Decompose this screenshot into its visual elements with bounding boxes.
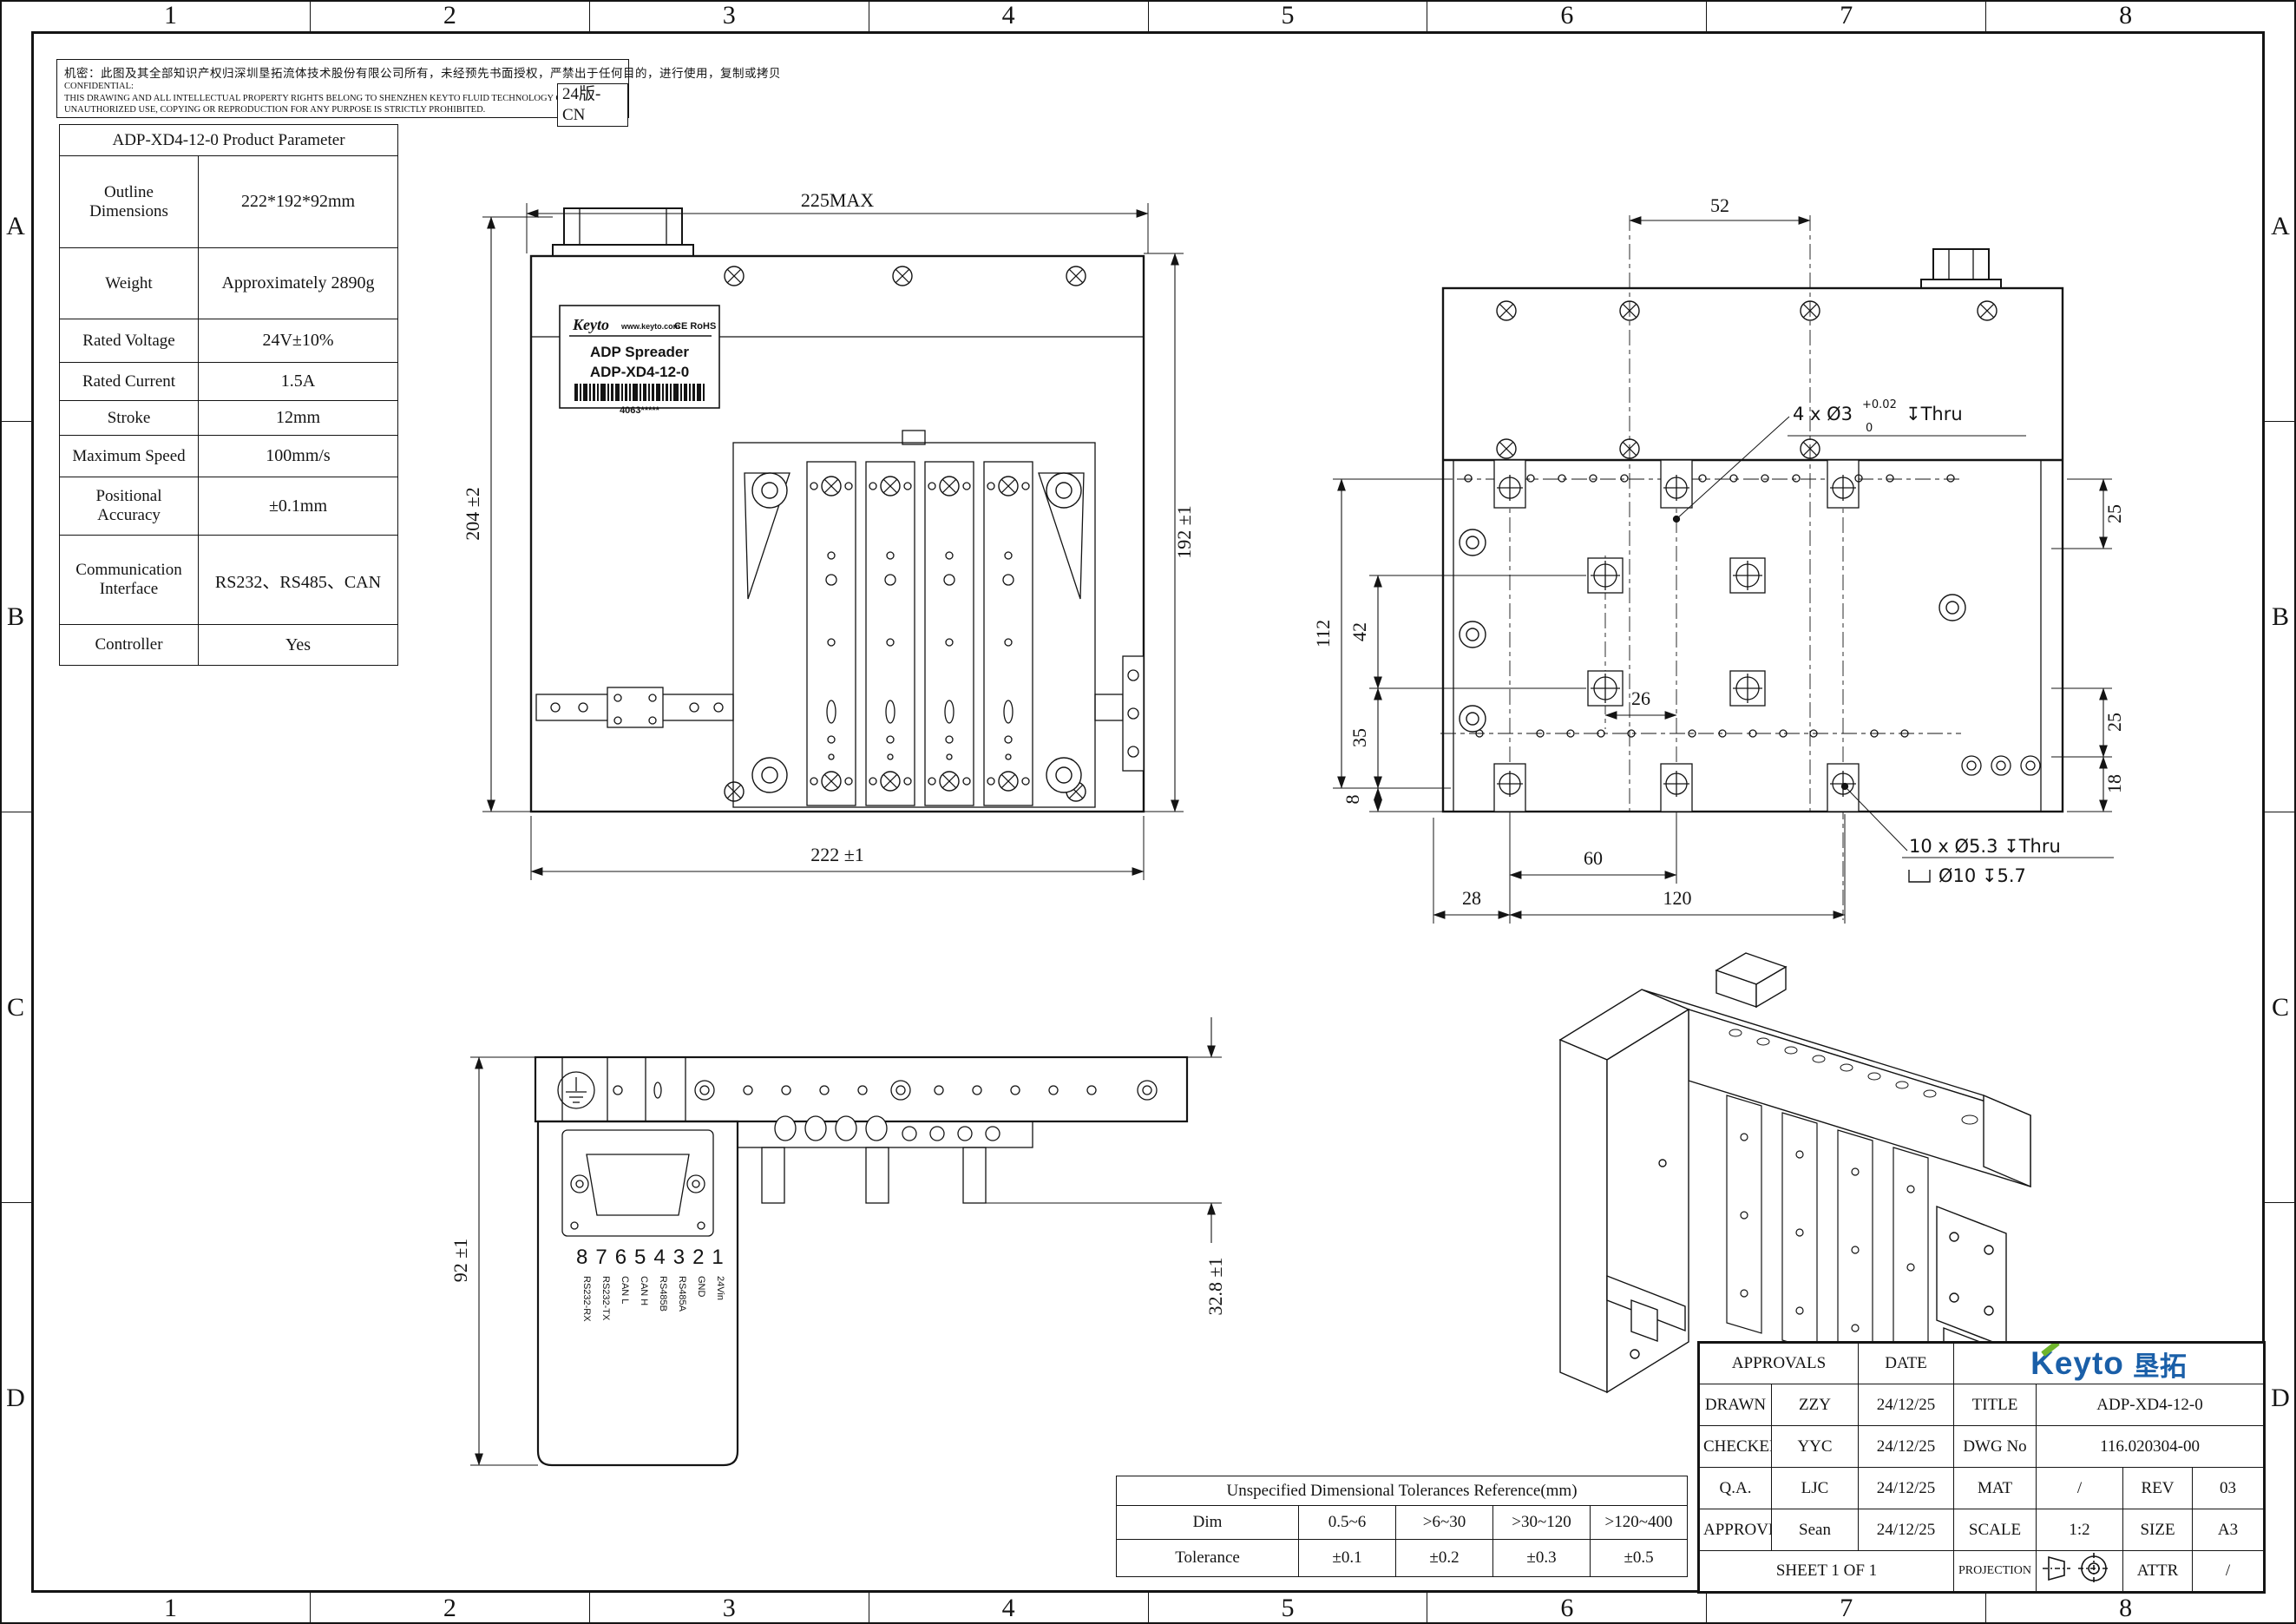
param-value: ±0.1mm (199, 477, 398, 536)
param-value: 222*192*92mm (199, 156, 398, 248)
role-date: 24/12/25 (1859, 1426, 1954, 1468)
mounting-hole-view (1333, 215, 2114, 924)
dim-hole-18: 18 (2103, 774, 2125, 793)
label-model: ADP-XD4-12-0 (590, 364, 689, 380)
tolerance-value: ±0.1 (1299, 1540, 1396, 1577)
svg-text:RS232-TX: RS232-TX (600, 1276, 611, 1321)
confidential-cn: 机密：此图及其全部知识产权归深圳垦拓流体技术股份有限公司所有，未经预先书面授权，… (64, 63, 621, 81)
dim-hole-52: 52 (1710, 194, 1729, 216)
param-label: Controller (60, 625, 199, 666)
svg-text:GND: GND (696, 1276, 706, 1298)
mat-label: MAT (1954, 1468, 2037, 1509)
earth-ground-icon (558, 1072, 594, 1108)
attr-value: / (2193, 1551, 2265, 1593)
param-label: Communication Interface (60, 536, 199, 625)
tolerance-dim-range: >6~30 (1396, 1506, 1493, 1540)
dim-hole-25-bottom: 25 (2103, 713, 2125, 732)
dwg-no-value: 116.020304-00 (2037, 1426, 2265, 1468)
param-label: Rated Voltage (60, 319, 199, 363)
rev-value: 03 (2193, 1468, 2265, 1509)
tolerance-dim-range: 0.5~6 (1299, 1506, 1396, 1540)
svg-text:CAN H: CAN H (639, 1276, 649, 1305)
dim-front-left: 204 ±2 (462, 487, 483, 541)
company-logo: Keyto 垦拓 (1954, 1343, 2265, 1384)
size-value: A3 (2193, 1509, 2265, 1551)
title-label: TITLE (1954, 1384, 2037, 1426)
attr-label: ATTR (2123, 1551, 2193, 1593)
tolerance-table-title: Unspecified Dimensional Tolerances Refer… (1117, 1476, 1688, 1506)
third-angle-projection-icon (2040, 1551, 2123, 1586)
date-header: DATE (1859, 1343, 1954, 1384)
role-date: 24/12/25 (1859, 1509, 1954, 1551)
confidential-en3: UNAUTHORIZED USE, COPYING OR REPRODUCTIO… (64, 104, 621, 116)
role-label: Q.A. (1699, 1468, 1772, 1509)
callout-mount-line1: 10 x Ø5.3 ↧Thru (1909, 836, 2061, 857)
dim-front-right: 192 ±1 (1173, 505, 1195, 559)
tolerance-value: ±0.5 (1591, 1540, 1688, 1577)
dim-hole-25-top: 25 (2103, 504, 2125, 523)
param-value: 100mm/s (199, 436, 398, 477)
callout-pins-suffix: ↧Thru (1906, 404, 1963, 424)
size-label: SIZE (2123, 1509, 2193, 1551)
confidential-en1: CONFIDENTIAL: (64, 81, 621, 93)
front-view (482, 203, 1184, 880)
role-label: APPROVED (1699, 1509, 1772, 1551)
label-cert: CE RoHS (674, 321, 716, 332)
projection-symbol (2037, 1551, 2123, 1593)
param-label: Weight (60, 248, 199, 319)
role-name: ZZY (1772, 1384, 1859, 1426)
param-value: 12mm (199, 401, 398, 436)
approvals-header: APPROVALS (1699, 1343, 1859, 1384)
role-label: CHECKED (1699, 1426, 1772, 1468)
svg-text:RS485B: RS485B (658, 1276, 668, 1312)
param-label: Maximum Speed (60, 436, 199, 477)
isometric-view (1560, 953, 2030, 1392)
dwg-no-label: DWG No (1954, 1426, 2037, 1468)
product-label: Keyto www.keyto.com CE RoHS ADP Spreader… (560, 306, 719, 416)
param-table-title: ADP-XD4-12-0 Product Parameter (60, 125, 398, 156)
dim-hole-35: 35 (1348, 728, 1370, 747)
confidential-en2: THIS DRAWING AND ALL INTELLECTUAL PROPER… (64, 93, 621, 105)
dim-hole-26: 26 (1631, 687, 1650, 709)
param-label: Rated Current (60, 363, 199, 401)
svg-text:RS232-RX: RS232-RX (581, 1276, 592, 1322)
tolerance-dim-range: >30~120 (1493, 1506, 1591, 1540)
param-value: 24V±10% (199, 319, 398, 363)
scale-label: SCALE (1954, 1509, 2037, 1551)
role-name: YYC (1772, 1426, 1859, 1468)
tolerance-dim-label: Dim (1117, 1506, 1299, 1540)
tolerance-dim-range: >120~400 (1591, 1506, 1688, 1540)
title-value: ADP-XD4-12-0 (2037, 1384, 2265, 1426)
param-value: RS232、RS485、CAN (199, 536, 398, 625)
dim-hole-28: 28 (1462, 887, 1481, 909)
product-parameter-table: ADP-XD4-12-0 Product Parameter Outline D… (59, 124, 398, 666)
callout-pins-tol-sub: 0 (1866, 422, 1873, 435)
confidential-notice: 机密：此图及其全部知识产权归深圳垦拓流体技术股份有限公司所有，未经预先书面授权，… (56, 59, 629, 118)
tolerance-value: ±0.3 (1493, 1540, 1591, 1577)
pin-numbers: 87654321 (576, 1246, 731, 1269)
drawing-sheet: 1 2 3 4 5 6 7 8 1 2 3 4 5 6 7 8 A B C D … (0, 0, 2296, 1624)
title-block: APPROVALS DATE Keyto 垦拓 DRAWN ZZY 24/12/… (1697, 1341, 2266, 1594)
param-label: Outline Dimensions (60, 156, 199, 248)
label-brand: Keyto (572, 316, 609, 333)
side-view (470, 1017, 1222, 1465)
callout-pins-prefix: 4 x Ø3 (1793, 404, 1853, 424)
sheet-label: SHEET 1 OF 1 (1699, 1551, 1954, 1593)
projection-label: PROJECTION (1954, 1551, 2037, 1593)
tolerance-value: ±0.2 (1396, 1540, 1493, 1577)
param-value: Approximately 2890g (199, 248, 398, 319)
param-label: Stroke (60, 401, 199, 436)
svg-text:RS485A: RS485A (677, 1276, 687, 1312)
role-date: 24/12/25 (1859, 1468, 1954, 1509)
label-serial: 4063***** (620, 405, 660, 416)
tolerance-table: Unspecified Dimensional Tolerances Refer… (1116, 1476, 1688, 1577)
dim-hole-42: 42 (1348, 622, 1370, 641)
counterbore-icon (1909, 870, 1930, 882)
tolerance-label: Tolerance (1117, 1540, 1299, 1577)
dim-hole-60: 60 (1584, 847, 1603, 869)
dim-side-height: 92 ±1 (449, 1239, 471, 1283)
dim-hole-120: 120 (1663, 887, 1692, 909)
svg-text:CAN L: CAN L (620, 1276, 630, 1304)
dim-hole-112: 112 (1312, 620, 1334, 648)
dim-side-stage: 32.8 ±1 (1204, 1257, 1226, 1315)
role-label: DRAWN (1699, 1384, 1772, 1426)
version-badge: 24版-CN (557, 83, 628, 127)
pin-labels: RS232-RX RS232-TX CAN L CAN H RS485B RS4… (581, 1276, 725, 1322)
scale-value: 1:2 (2037, 1509, 2123, 1551)
label-product: ADP Spreader (590, 344, 689, 360)
role-name: LJC (1772, 1468, 1859, 1509)
dim-front-bottom: 222 ±1 (810, 844, 864, 865)
label-url: www.keyto.com (620, 322, 680, 331)
param-label: Positional Accuracy (60, 477, 199, 536)
logo-text-cn: 垦拓 (2133, 1345, 2187, 1384)
barcode-icon (574, 384, 705, 401)
dim-front-top: 225MAX (801, 189, 874, 211)
param-value: Yes (199, 625, 398, 666)
rev-label: REV (2123, 1468, 2193, 1509)
svg-text:24Vin: 24Vin (715, 1276, 725, 1300)
param-value: 1.5A (199, 363, 398, 401)
callout-pins-tol-sup: +0.02 (1862, 398, 1897, 411)
callout-mount-line2: Ø10 ↧5.7 (1938, 865, 2026, 886)
dim-hole-8: 8 (1342, 795, 1363, 805)
role-date: 24/12/25 (1859, 1384, 1954, 1426)
mat-value: / (2037, 1468, 2123, 1509)
role-name: Sean (1772, 1509, 1859, 1551)
